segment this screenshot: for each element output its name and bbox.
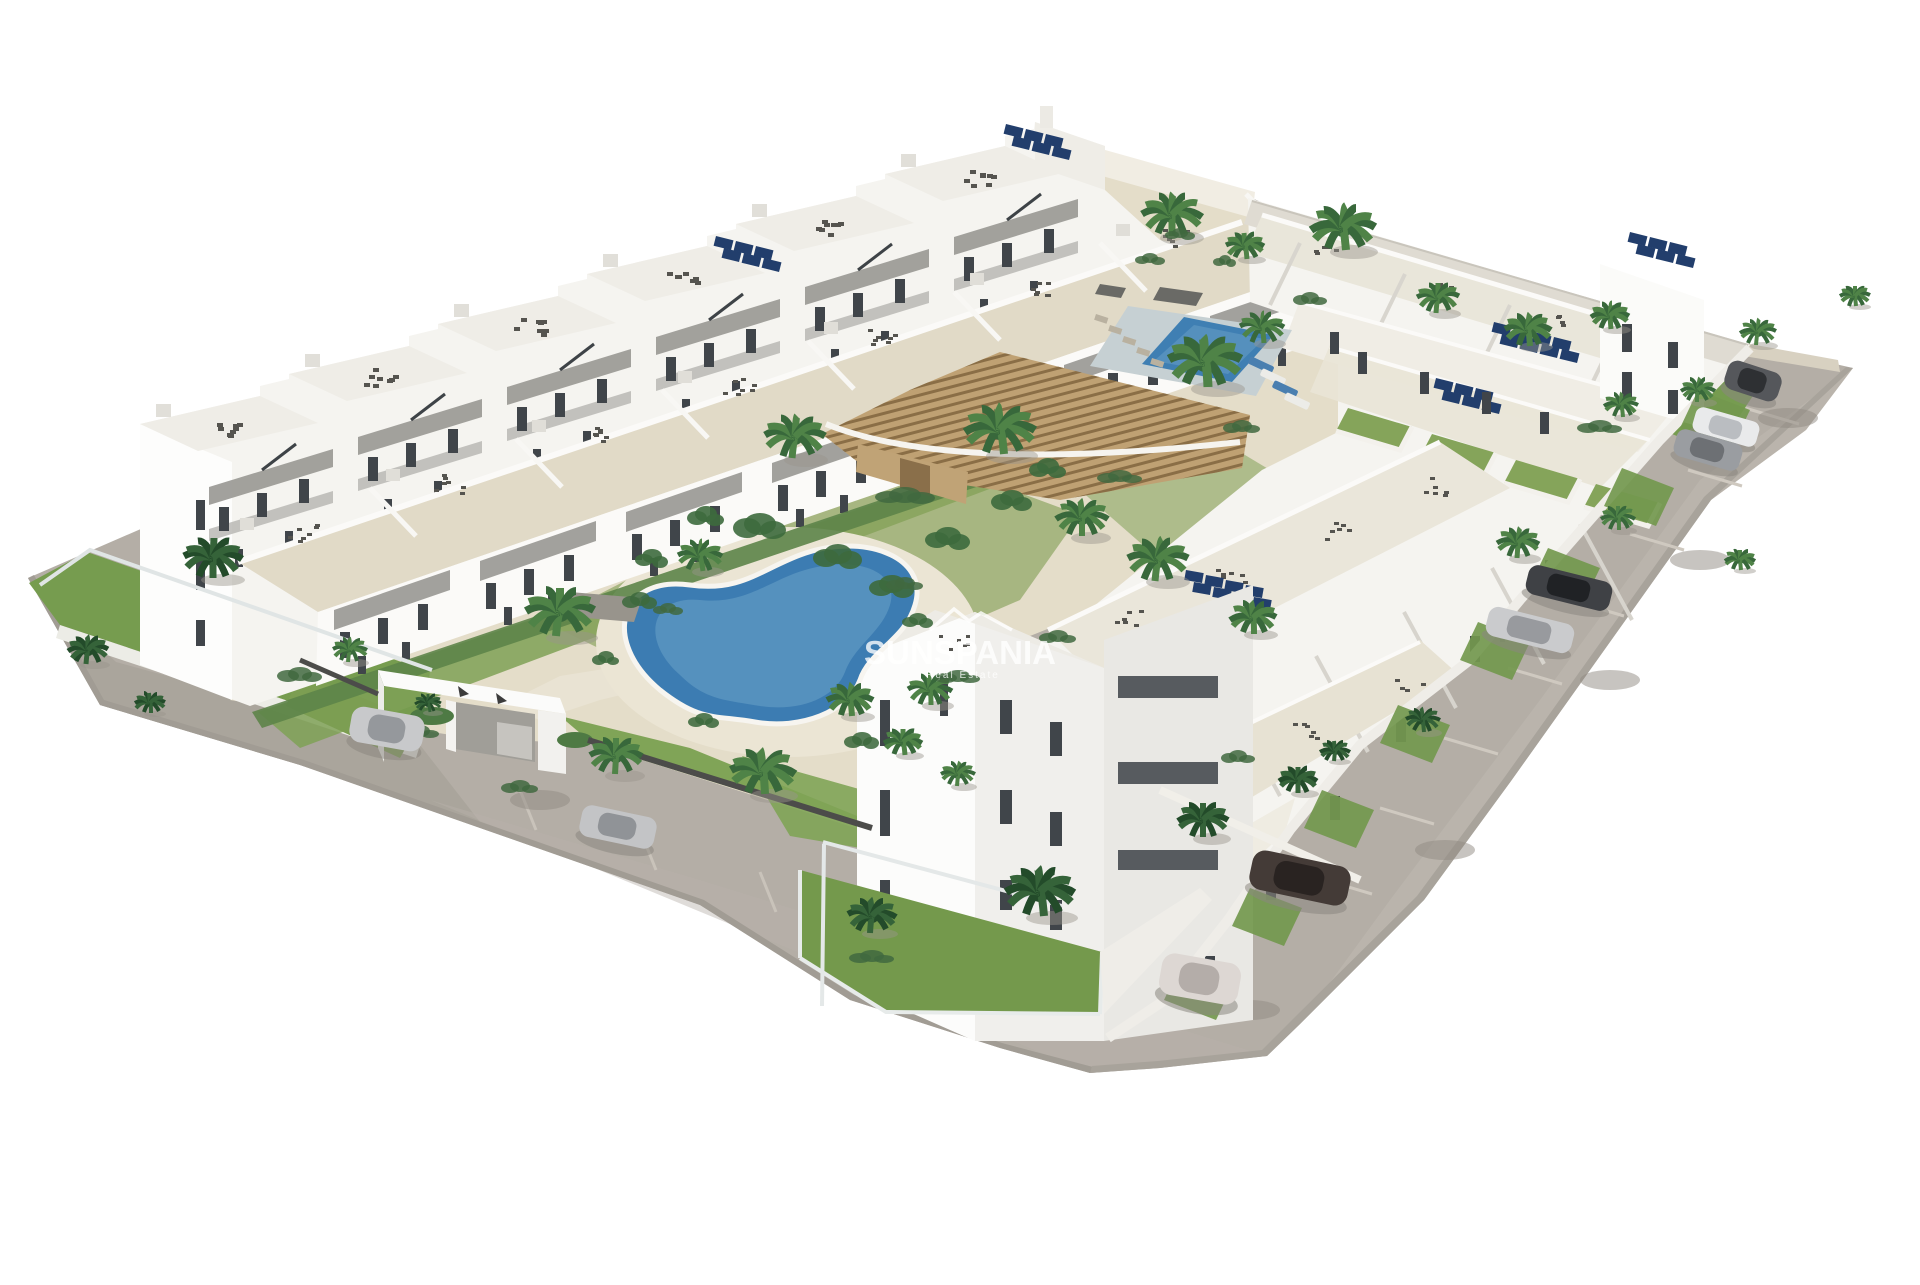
svg-text:Real Estate: Real Estate: [926, 670, 1000, 681]
svg-text:SUNSPANIA: SUNSPANIA: [864, 634, 1056, 671]
